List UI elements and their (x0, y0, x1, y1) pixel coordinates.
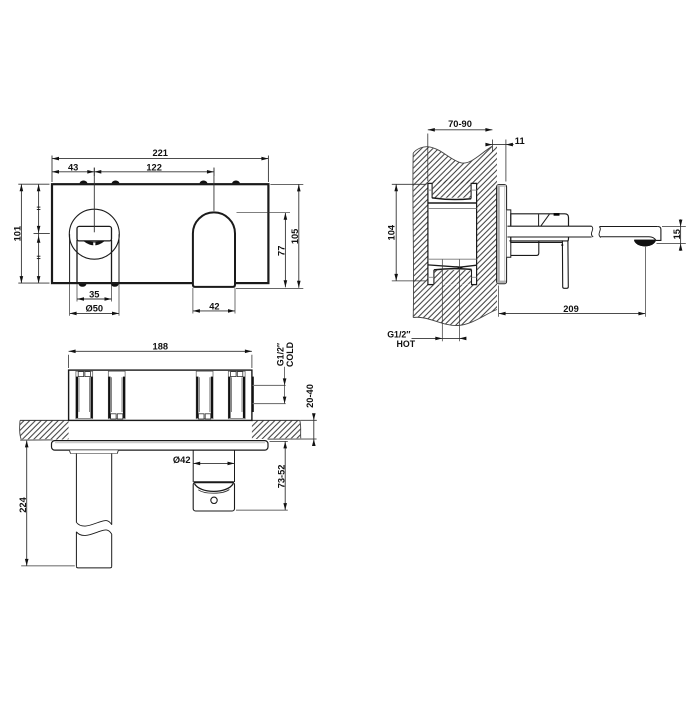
svg-text:122: 122 (146, 163, 162, 173)
svg-text:224: 224 (18, 496, 28, 512)
svg-text:77: 77 (276, 246, 286, 256)
svg-text:Ø50: Ø50 (86, 304, 104, 314)
svg-text:42: 42 (209, 302, 219, 312)
svg-text:104: 104 (387, 224, 397, 240)
svg-text:73-52: 73-52 (276, 465, 286, 489)
svg-text:11: 11 (515, 136, 525, 146)
svg-text:221: 221 (152, 148, 168, 158)
svg-text:70-90: 70-90 (448, 119, 472, 129)
svg-text:COLD: COLD (285, 342, 295, 367)
svg-text:20-40: 20-40 (305, 384, 315, 408)
svg-text:15: 15 (672, 229, 682, 239)
svg-text:43: 43 (68, 163, 78, 173)
svg-text:G1/2″: G1/2″ (387, 329, 411, 339)
svg-text:HOT: HOT (397, 339, 416, 349)
svg-text:35: 35 (89, 289, 99, 299)
svg-text:101: 101 (13, 226, 23, 242)
svg-text:209: 209 (563, 304, 579, 314)
svg-text:105: 105 (290, 229, 300, 245)
svg-text:188: 188 (153, 342, 169, 352)
svg-text:Ø42: Ø42 (173, 455, 191, 465)
